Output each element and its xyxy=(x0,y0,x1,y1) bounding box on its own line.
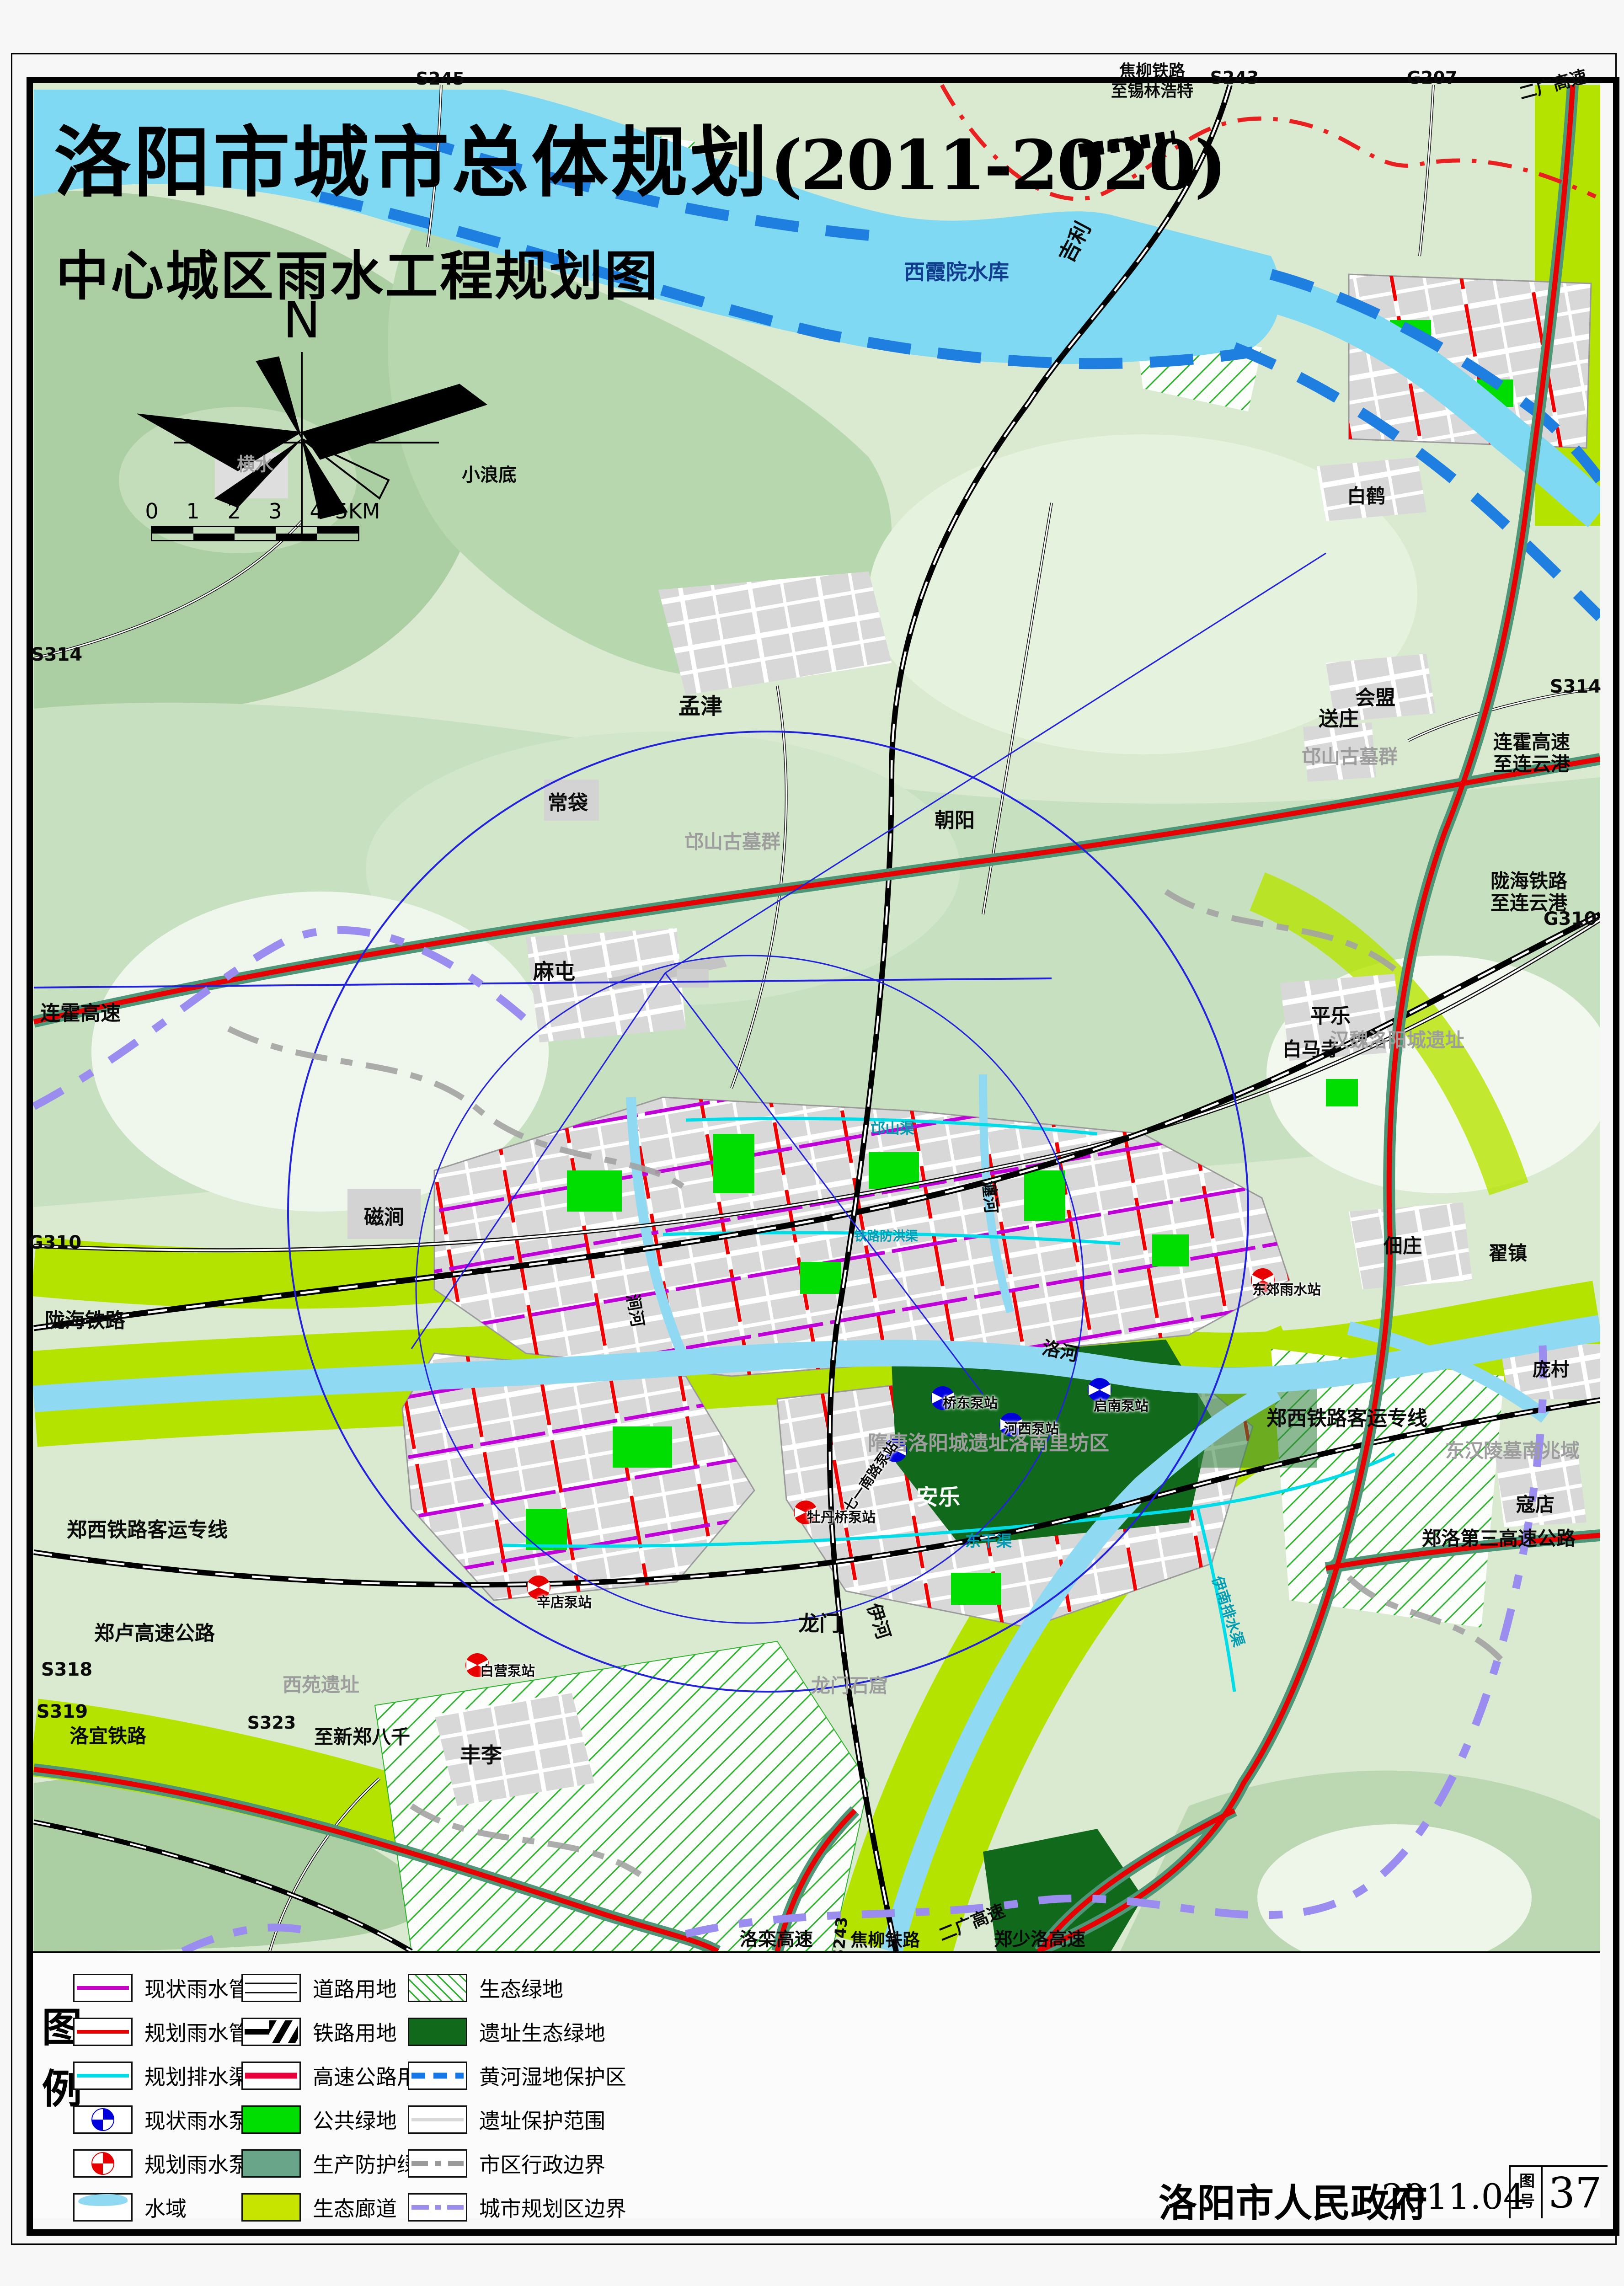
map-label: 郑少洛高速 xyxy=(994,1924,1085,1951)
map-label: 至连云港 xyxy=(1493,749,1570,777)
map-label: 隋唐洛阳城遗址洛南里坊区 xyxy=(868,1426,1109,1456)
legend-item: 城市规划区边界 xyxy=(408,2185,626,2229)
map-label: 龙门 xyxy=(798,1607,840,1637)
map-label: 至新郑八千 xyxy=(314,1722,410,1750)
map-label: 伊河 xyxy=(862,1599,898,1642)
map-label: 铁路防洪渠 xyxy=(854,1226,918,1244)
map-label: G310 xyxy=(1544,908,1597,929)
map-label: S243 xyxy=(1210,68,1259,88)
map-label: 平乐 xyxy=(1310,999,1351,1029)
map-label: S318 xyxy=(41,1659,92,1680)
legend-swatch-pump_blue xyxy=(73,2105,133,2134)
map-label: 白鹤 xyxy=(1347,481,1385,509)
map-label: 洛栾高速 xyxy=(740,1924,813,1951)
legend-label: 市区行政边界 xyxy=(479,2148,605,2179)
map-label: 东郊雨水站 xyxy=(1252,1278,1321,1298)
map-label: 焦柳铁路 xyxy=(850,1926,920,1951)
legend-swatch-rail xyxy=(241,2018,301,2046)
legend-label: 水域 xyxy=(144,2192,187,2222)
map-label: 至锡林浩特 xyxy=(1111,78,1193,101)
map-label: 丰李 xyxy=(460,1739,502,1769)
map-label: 瀍河 xyxy=(978,1180,1004,1214)
legend-heading: 图例 xyxy=(38,2006,79,2129)
map-label: 河西泵站 xyxy=(1004,1417,1059,1437)
legend-swatch-pump_red xyxy=(73,2149,133,2178)
map-label: 邙山渠 xyxy=(871,1117,914,1138)
legend-label: 生态廊道 xyxy=(313,2192,397,2222)
map-label: 龙门石窟 xyxy=(811,1671,888,1698)
map-label: S314 xyxy=(31,644,82,665)
legend-swatch-green xyxy=(241,2105,301,2134)
map-label: 邙山古墓群 xyxy=(684,827,780,855)
legend-label: 城市规划区边界 xyxy=(479,2192,626,2222)
legend-item: 市区行政边界 xyxy=(408,2142,626,2185)
legend-swatch-line_cyan xyxy=(73,2062,133,2090)
sheet-number-box: 图号 37 xyxy=(1509,2165,1608,2218)
legend-swatch-water xyxy=(73,2193,133,2222)
map-label: 翟镇 xyxy=(1489,1238,1527,1266)
map-label: G207 xyxy=(1407,68,1458,88)
map-label: 涧河 xyxy=(622,1292,651,1329)
publish-date: 2011.04 xyxy=(1382,2176,1525,2217)
map-label: 牡丹桥泵站 xyxy=(807,1506,876,1526)
map-label: 洛河 xyxy=(1040,1333,1081,1366)
legend-label: 铁路用地 xyxy=(313,2017,397,2047)
map-label: 安乐 xyxy=(916,1479,960,1511)
legend-swatch-hatch xyxy=(408,1974,467,2002)
sheet-number-value: 37 xyxy=(1543,2167,1608,2218)
map-label: 送庄 xyxy=(1319,702,1359,732)
map-label: 辛店泵站 xyxy=(537,1591,592,1611)
map-label: 白营泵站 xyxy=(480,1660,535,1680)
legend-label: 生态绿地 xyxy=(479,1973,563,2003)
map-label: 汉魏洛阳城遗址 xyxy=(1330,1025,1464,1053)
map-label: 朝阳 xyxy=(935,804,975,833)
map-label: S319 xyxy=(37,1701,88,1722)
legend-item: 遗址生态绿地 xyxy=(408,2010,626,2054)
legend-label: 遗址生态绿地 xyxy=(479,2017,605,2047)
map-label: 陇海铁路 xyxy=(45,1304,125,1333)
legend-label: 遗址保护范围 xyxy=(479,2104,605,2135)
map-label: 孟津 xyxy=(678,688,722,720)
legend-swatch-dash_gray xyxy=(408,2149,467,2178)
sheet-number-label: 图号 xyxy=(1515,2173,1537,2213)
legend-swatch-corridor xyxy=(241,2193,301,2222)
map-label: S314 xyxy=(1550,676,1601,697)
legend-swatch-hwyland xyxy=(241,2062,301,2090)
legend-item: 黄河湿地保护区 xyxy=(408,2054,626,2098)
map-label: 常袋 xyxy=(548,786,588,816)
legend-swatch-line_red xyxy=(73,2018,133,2046)
map-label: 东汉陵墓南兆域 xyxy=(1445,1436,1580,1463)
legend-item: 遗址保护范围 xyxy=(408,2098,626,2142)
map-label: 西霞院水库 xyxy=(904,256,1009,286)
legend-swatch-dashdot_purple xyxy=(408,2193,467,2222)
map-label: S323 xyxy=(247,1713,296,1733)
map-label: 洛宜铁路 xyxy=(69,1721,146,1749)
map-label: 二广高速 xyxy=(1516,62,1589,104)
map-label: 邙山古墓群 xyxy=(1302,742,1398,769)
map-label: 东干渠 xyxy=(965,1529,1012,1551)
legend-label: 黄河湿地保护区 xyxy=(479,2061,626,2091)
map-label: S245 xyxy=(416,69,465,89)
map-label: 连霍高速 xyxy=(40,997,121,1026)
map-label: 横水 xyxy=(237,449,273,476)
map-label: 启南泵站 xyxy=(1094,1394,1149,1415)
map-label: 伊南排水渠 xyxy=(1207,1573,1250,1649)
map-label: 小浪底 xyxy=(462,460,517,486)
legend-swatch-line_ltgray xyxy=(408,2105,467,2134)
map-label: 郑西铁路客运专线 xyxy=(1266,1402,1427,1431)
map-label: 佃庄 xyxy=(1384,1231,1422,1259)
map-label: 郑卢高速公路 xyxy=(94,1617,215,1646)
map-label: 磁涧 xyxy=(364,1201,404,1230)
map-label: 吉利 xyxy=(1050,216,1096,267)
sheet-number-label-cell: 图号 xyxy=(1511,2167,1543,2218)
legend-label: 道路用地 xyxy=(313,1973,397,2003)
map-label: 郑西铁路客运专线 xyxy=(67,1513,228,1543)
legend-swatch-road xyxy=(241,1974,301,2002)
legend-swatch-line_magenta xyxy=(73,1974,133,2002)
map-label: 郑洛第三高速公路 xyxy=(1422,1523,1576,1551)
map-label: G310 xyxy=(28,1232,81,1253)
legend-label: 公共绿地 xyxy=(313,2104,397,2135)
map-label: 西苑遗址 xyxy=(283,1670,359,1698)
map-labels-layer: S245焦柳铁路至锡林浩特S243G207二广高速S314S314连霍高速至连云… xyxy=(0,0,1624,2286)
legend-swatch-prodgreen xyxy=(241,2149,301,2178)
map-label: 桥东泵站 xyxy=(943,1392,998,1412)
map-label: 庞村 xyxy=(1533,1355,1569,1381)
map-label: 会盟 xyxy=(1355,681,1395,710)
map-label: 寇店 xyxy=(1516,1490,1555,1517)
legend-swatch-sitegreen xyxy=(408,2018,467,2046)
legend-swatch-dash_blue xyxy=(408,2062,467,2090)
map-label: 麻屯 xyxy=(533,955,575,985)
legend-column-3: 生态绿地遗址生态绿地黄河湿地保护区遗址保护范围市区行政边界城市规划区边界 xyxy=(408,1966,626,2229)
legend-item: 生态绿地 xyxy=(408,1966,626,2010)
